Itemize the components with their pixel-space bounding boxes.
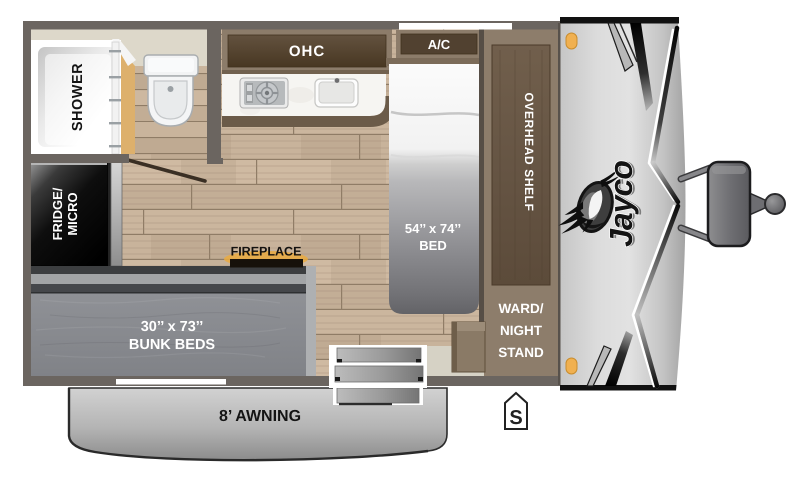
svg-text:FRIDGE/: FRIDGE/ bbox=[50, 187, 65, 240]
svg-text:8’ AWNING: 8’ AWNING bbox=[219, 408, 301, 425]
svg-text:FIREPLACE: FIREPLACE bbox=[231, 245, 302, 259]
svg-text:BED: BED bbox=[419, 238, 446, 253]
svg-text:OHC: OHC bbox=[289, 43, 325, 60]
svg-text:S: S bbox=[509, 407, 522, 429]
svg-text:54’’ x 74’’: 54’’ x 74’’ bbox=[405, 221, 461, 236]
svg-text:STAND: STAND bbox=[498, 345, 544, 360]
svg-text:MICRO: MICRO bbox=[65, 192, 80, 235]
svg-text:SHOWER: SHOWER bbox=[70, 63, 86, 131]
svg-text:OVERHEAD SHELF: OVERHEAD SHELF bbox=[522, 92, 536, 211]
svg-text:NIGHT: NIGHT bbox=[500, 323, 543, 338]
svg-text:30’’ x 73’’: 30’’ x 73’’ bbox=[141, 319, 204, 335]
svg-text:A/C: A/C bbox=[428, 37, 451, 52]
svg-text:WARD/: WARD/ bbox=[499, 301, 544, 316]
svg-text:BUNK BEDS: BUNK BEDS bbox=[129, 337, 216, 353]
svg-text:Jayco: Jayco bbox=[603, 161, 639, 247]
